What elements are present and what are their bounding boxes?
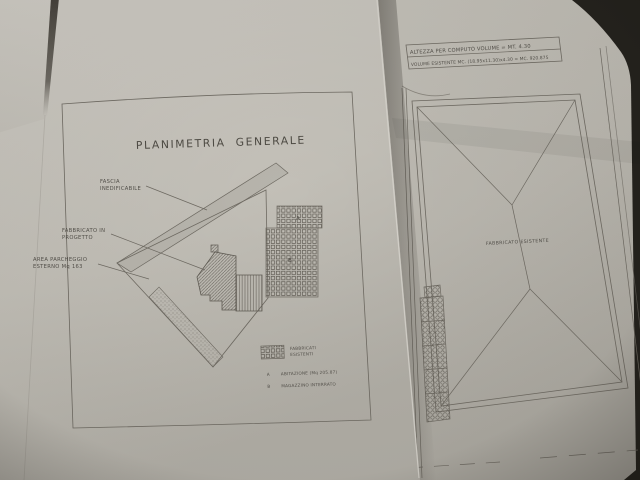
photo-vignette xyxy=(0,0,640,480)
photo-of-architectural-plans: ALTEZZA PER COMPUTO VOLUME = MT. 4.30 VO… xyxy=(0,0,640,480)
plans-photo-canvas: ALTEZZA PER COMPUTO VOLUME = MT. 4.30 VO… xyxy=(0,0,640,480)
